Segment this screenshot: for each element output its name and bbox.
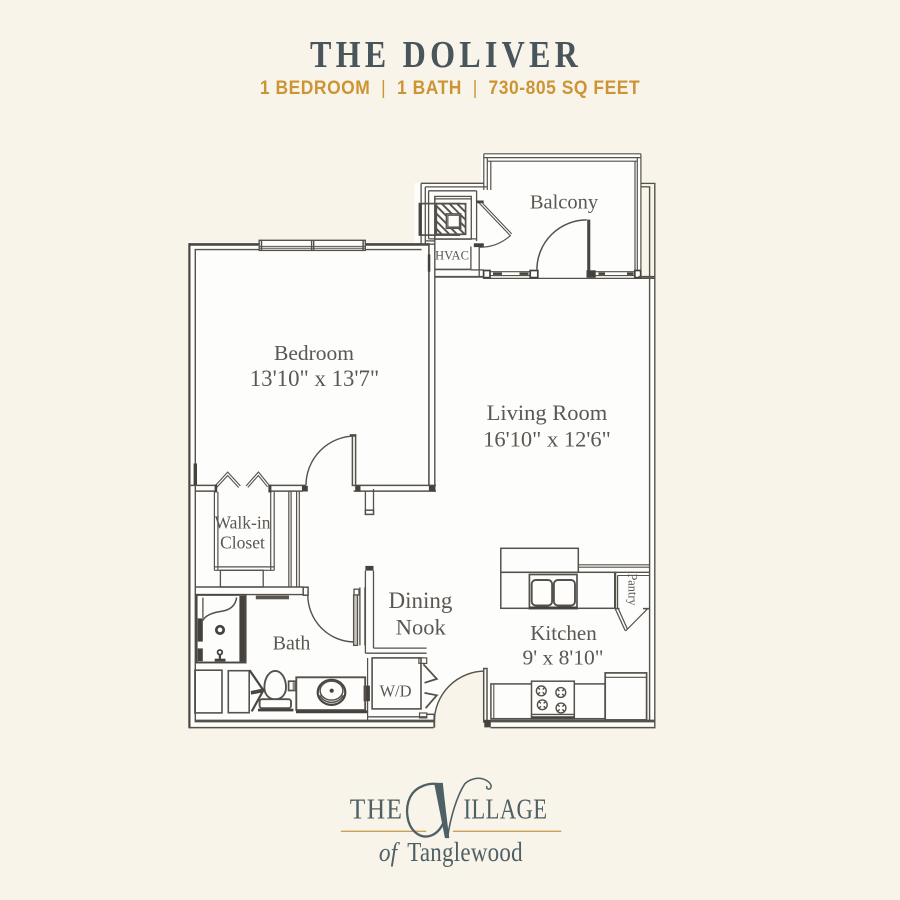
svg-text:Walk-in: Walk-in	[215, 513, 271, 533]
svg-text:THE DOLIVER: THE DOLIVER	[310, 34, 582, 76]
svg-text:Kitchen: Kitchen	[530, 621, 597, 645]
svg-text:ILLAGE: ILLAGE	[464, 793, 548, 825]
svg-text:9' x 8'10": 9' x 8'10"	[522, 646, 603, 670]
svg-text:13'10" x 13'7": 13'10" x 13'7"	[250, 366, 379, 391]
svg-text:of: of	[379, 839, 400, 867]
svg-text:Balcony: Balcony	[530, 192, 599, 214]
svg-text:Closet: Closet	[220, 533, 265, 553]
svg-text:Dining: Dining	[389, 588, 453, 613]
svg-text:HVAC: HVAC	[435, 249, 469, 263]
svg-text:Bedroom: Bedroom	[274, 341, 354, 365]
svg-text:THE: THE	[350, 793, 404, 825]
svg-text:16'10" x 12'6": 16'10" x 12'6"	[483, 427, 611, 452]
svg-text:Living Room: Living Room	[487, 400, 608, 425]
svg-text:W/D: W/D	[379, 682, 411, 701]
svg-text:Nook: Nook	[396, 615, 447, 640]
svg-text:Bath: Bath	[273, 633, 311, 655]
svg-text:Tanglewood: Tanglewood	[407, 838, 523, 867]
svg-text:1 BEDROOM | 1 BATH | 730-8: 1 BEDROOM | 1 BATH | 730-805 SQ FEET	[260, 76, 640, 98]
svg-text:Pantry: Pantry	[626, 573, 640, 606]
